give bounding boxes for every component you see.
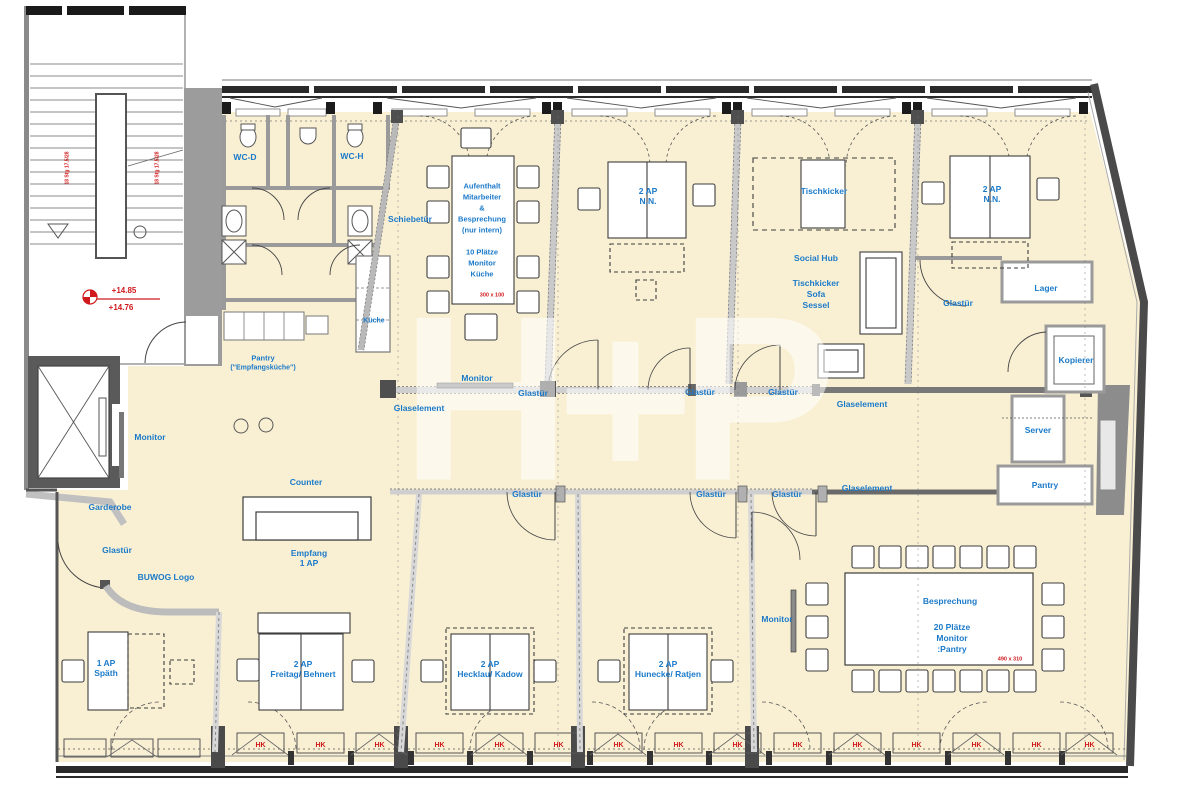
reception-furniture [243, 497, 371, 540]
room-label-nn-center-1: 2 AP [639, 187, 658, 196]
tischkicker-label: Tischkicker [801, 187, 848, 196]
social-hub-item-2: Sofa [807, 290, 825, 299]
monitor-bar-corridor [437, 383, 513, 388]
room-label-hunecke-1: 2 AP [659, 660, 678, 669]
glastuer-label-lager: Glastür [943, 299, 973, 308]
glastuer-label-2: Glastür [685, 388, 715, 397]
aufenthalt-table-dimension: 300 x 100 [480, 293, 504, 299]
glastuer-label-5: Glastür [696, 490, 726, 499]
aufenthalt-label-1: Aufenthalt [463, 182, 500, 190]
aufenthalt-label-6: 10 Plätze [466, 248, 498, 256]
hk-label: HK [434, 742, 444, 749]
room-label-spaeth-2: Späth [94, 669, 118, 678]
hk-label: HK [852, 742, 862, 749]
pantry-reception-label-1: Pantry [251, 354, 274, 362]
besprechung-label-3: :Pantry [937, 645, 966, 654]
room-label-freitag-2: Freitag/ Behnert [270, 670, 335, 679]
social-hub-label: Social Hub [794, 254, 838, 263]
room-label-nn-center-2: N.N. [640, 197, 657, 206]
besprechung-label-2: Monitor [936, 634, 967, 643]
besprechung-label-1: 20 Plätze [934, 623, 970, 632]
glastuer-label-4: Glastür [512, 490, 542, 499]
stair-riser-note-right: 18 Stg 17,5/28 [156, 151, 161, 184]
empfang-label-1: Empfang [291, 549, 327, 558]
glaselement-label-1: Glaselement [394, 404, 445, 413]
room-label-lager: Lager [1034, 284, 1057, 293]
hk-label: HK [553, 742, 563, 749]
garderobe-label: Garderobe [89, 503, 132, 512]
aufenthalt-label-7: Monitor [468, 259, 496, 267]
social-hub-item-3: Sessel [803, 301, 830, 310]
level-lower: +14.76 [109, 304, 134, 312]
room-label-wc-h: WC-H [340, 152, 363, 161]
pantry-reception-label-2: ("Empfangsküche") [230, 365, 295, 372]
room-label-nn-right-1: 2 AP [983, 185, 1002, 194]
room-label-spaeth-1: 1 AP [97, 659, 116, 668]
room-label-nn-right-2: N.N. [984, 195, 1001, 204]
glaselement-label-2: Glaselement [837, 400, 888, 409]
glastuer-label-1: Glastür [518, 389, 548, 398]
floor-plan: HK HK HK HK HK HK HK HK HK HK HK HK HK H… [0, 0, 1200, 800]
aufenthalt-label-3: & [479, 204, 484, 212]
hk-label: HK [613, 742, 623, 749]
room-label-server: Server [1025, 426, 1051, 435]
hk-label: HK [315, 742, 325, 749]
sessel [818, 344, 864, 378]
level-upper: +14.85 [112, 287, 137, 295]
aufenthalt-label-4: Besprechung [458, 215, 506, 223]
stair-riser-note-left: 18 Stg 17,5/28 [66, 151, 71, 184]
elevator [28, 356, 124, 488]
empfang-label-2: 1 AP [300, 559, 319, 568]
besprechung-table-dimension: 490 x 310 [998, 657, 1022, 663]
glastuer-label-3: Glastür [768, 388, 798, 397]
monitor-bar-reception [119, 412, 124, 478]
hk-label: HK [255, 742, 265, 749]
counter-label: Counter [290, 478, 323, 487]
glastuer-label-6: Glastür [772, 490, 802, 499]
schiebetuer-label: Schiebetür [388, 215, 432, 224]
hk-label: HK [1031, 742, 1041, 749]
glaselement-label-3: Glaselement [842, 484, 893, 493]
hk-label: HK [1084, 742, 1094, 749]
hk-label: HK [911, 742, 921, 749]
glastuer-label-reception: Glastür [102, 546, 132, 555]
room-label-hecklau-2: Hecklau/ Kadow [457, 670, 522, 679]
besprechung-title: Besprechung [923, 597, 977, 606]
room-label-hunecke-2: Hunecke/ Ratjen [635, 670, 701, 679]
room-label-wc-d: WC-D [233, 153, 256, 162]
monitor-label-reception: Monitor [134, 433, 165, 442]
hk-label: HK [374, 742, 384, 749]
kueche-cabinet-label: Küche [363, 318, 384, 325]
buwog-logo-label: BUWOG Logo [138, 573, 195, 582]
room-label-pantry: Pantry [1032, 481, 1058, 490]
aufenthalt-label-8: Küche [471, 270, 494, 278]
hk-label: HK [792, 742, 802, 749]
room-label-kopierer: Kopierer [1059, 356, 1094, 365]
monitor-label-besprechung: Monitor [761, 615, 792, 624]
monitor-label-corridor: Monitor [461, 374, 492, 383]
hk-label: HK [494, 742, 504, 749]
room-label-hecklau-1: 2 AP [481, 660, 500, 669]
aufenthalt-label-5: (nur intern) [462, 226, 502, 234]
hk-label: HK [673, 742, 683, 749]
floor-plan-drawing: HK HK HK HK HK HK HK HK HK HK HK HK HK H… [0, 0, 1200, 800]
room-label-freitag-1: 2 AP [294, 660, 313, 669]
hk-label: HK [971, 742, 981, 749]
social-hub-item-1: Tischkicker [793, 279, 840, 288]
hk-label: HK [732, 742, 742, 749]
aufenthalt-label-2: Mitarbeiter [463, 193, 501, 201]
